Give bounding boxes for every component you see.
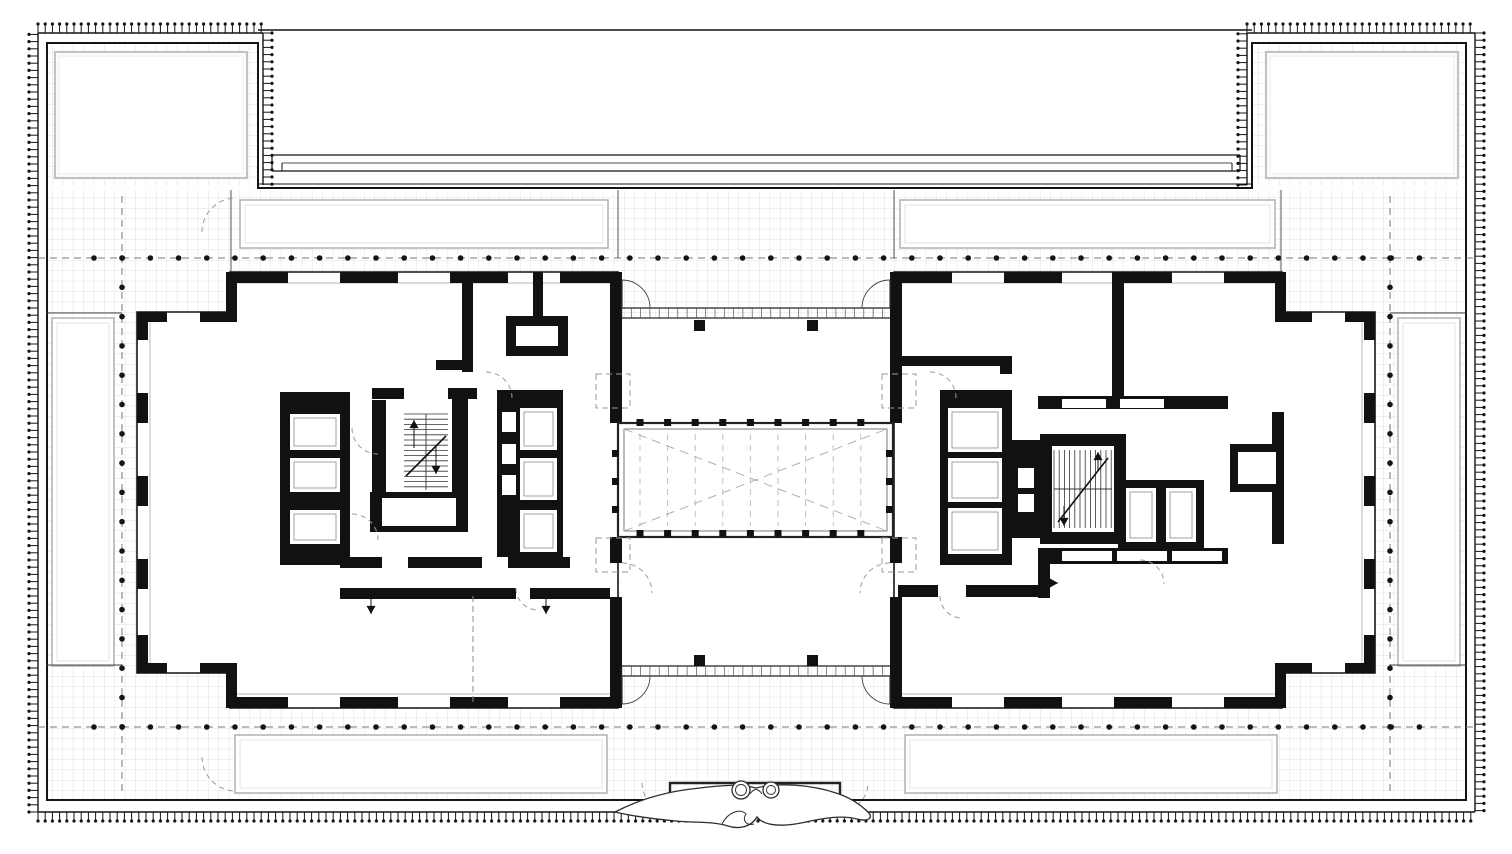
floor-plan-drawing — [0, 0, 1512, 854]
atrium-skylight — [612, 419, 893, 537]
top-strip-canopy — [258, 30, 1252, 184]
floor-plan-page — [0, 0, 1512, 854]
paving-grid — [47, 43, 1466, 800]
